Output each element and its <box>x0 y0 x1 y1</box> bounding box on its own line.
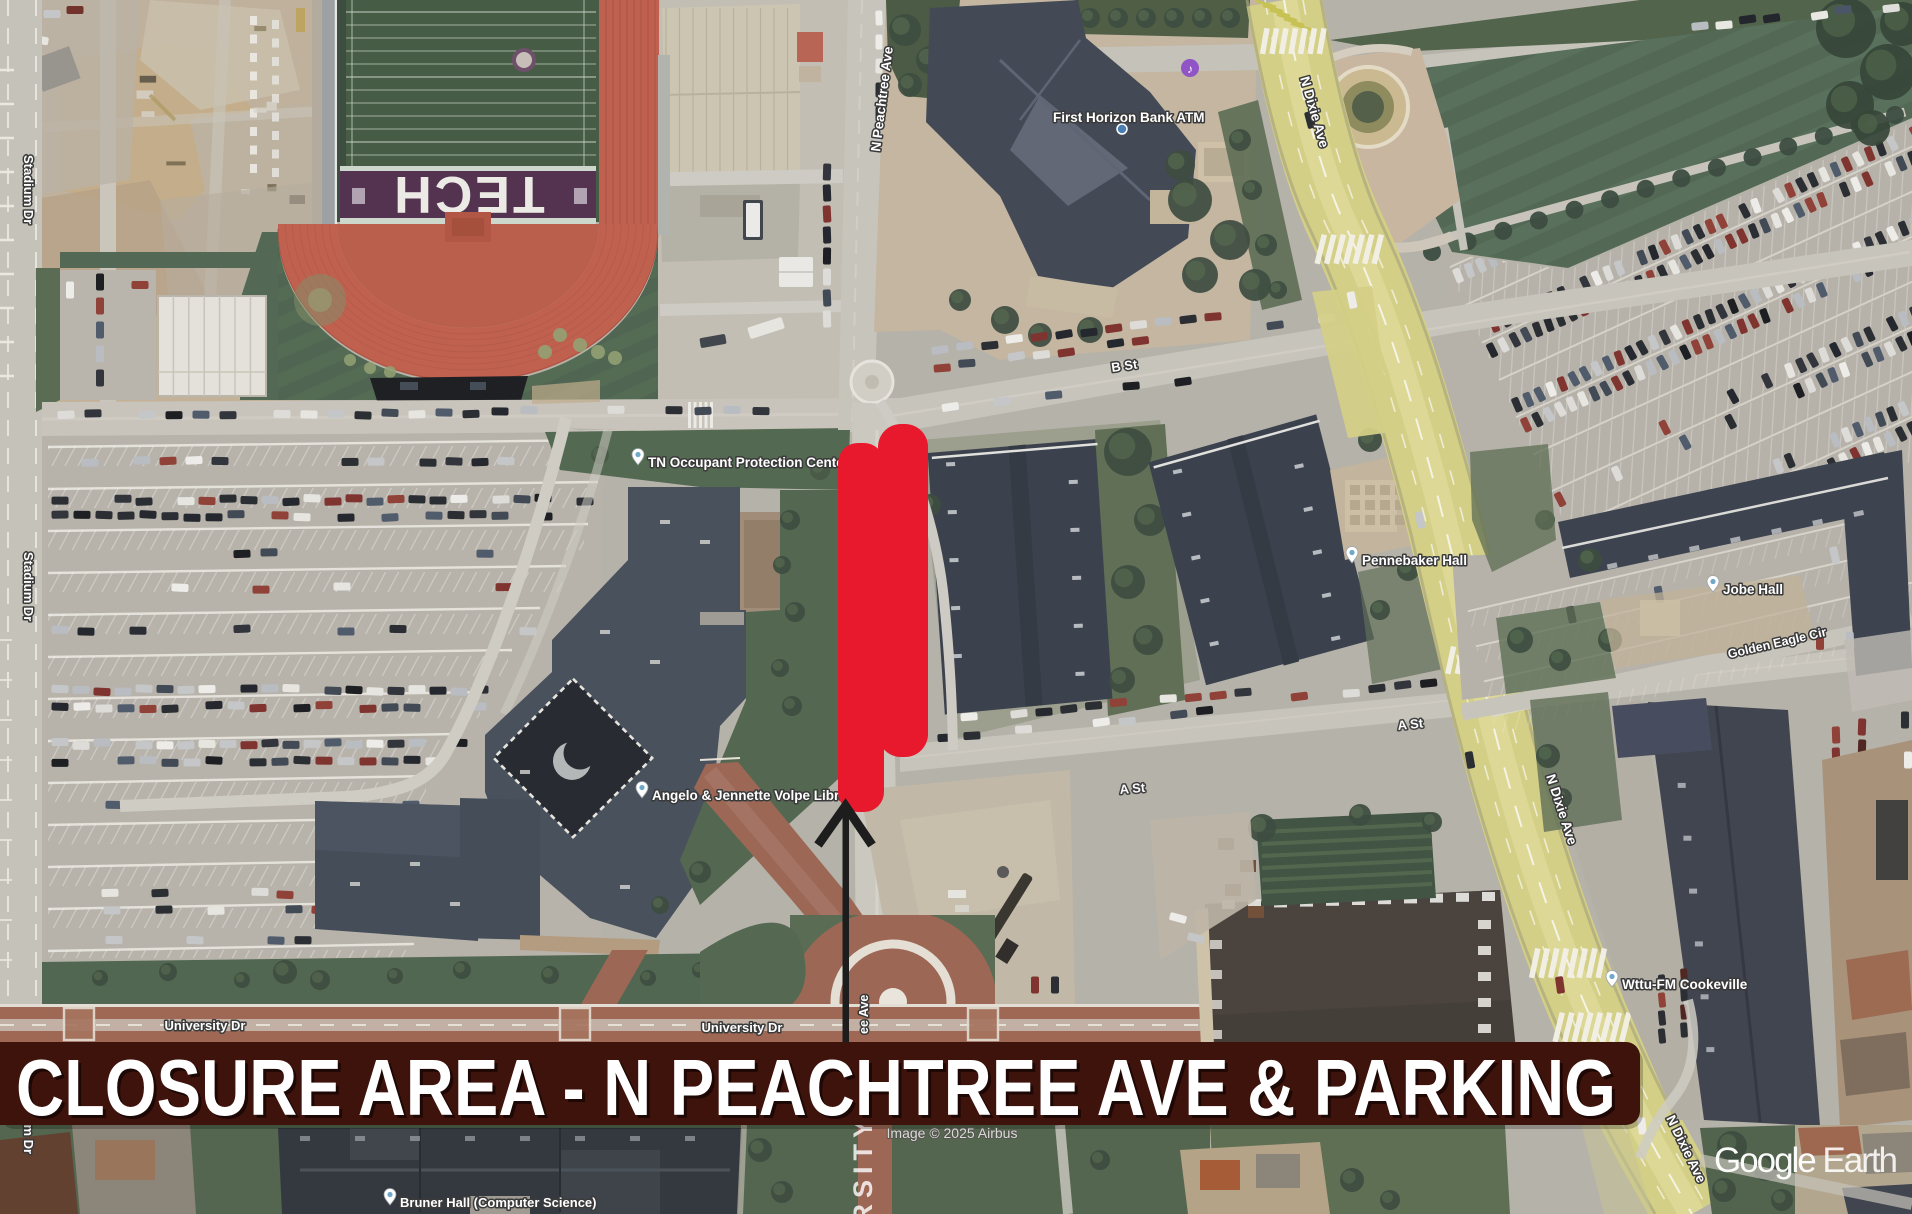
svg-text:ee Ave: ee Ave <box>857 995 871 1034</box>
svg-text:TN Occupant Protection Center: TN Occupant Protection Center <box>648 455 850 470</box>
svg-text:Google Earth: Google Earth <box>1714 1141 1898 1180</box>
svg-text:Image © 2025 Airbus: Image © 2025 Airbus <box>887 1125 1018 1141</box>
svg-text:Pennebaker Hall: Pennebaker Hall <box>1362 553 1467 568</box>
svg-text:University Dr: University Dr <box>702 1020 783 1035</box>
svg-text:Bruner Hall (Computer Science): Bruner Hall (Computer Science) <box>400 1195 597 1210</box>
svg-text:Jobe Hall: Jobe Hall <box>1723 582 1783 597</box>
svg-text:CLOSURE AREA - N PEACHTREE AVE: CLOSURE AREA - N PEACHTREE AVE & PARKING <box>16 1043 1616 1132</box>
svg-text:Wttu-FM Cookeville: Wttu-FM Cookeville <box>1622 977 1748 992</box>
svg-text:First Horizon Bank ATM: First Horizon Bank ATM <box>1053 110 1205 125</box>
svg-text:Stadium Dr: Stadium Dr <box>21 155 36 224</box>
svg-text:Stadium Dr: Stadium Dr <box>21 552 36 621</box>
svg-text:University Dr: University Dr <box>165 1018 246 1033</box>
svg-text:Angelo & Jennette Volpe Librar: Angelo & Jennette Volpe Librar <box>652 788 853 803</box>
